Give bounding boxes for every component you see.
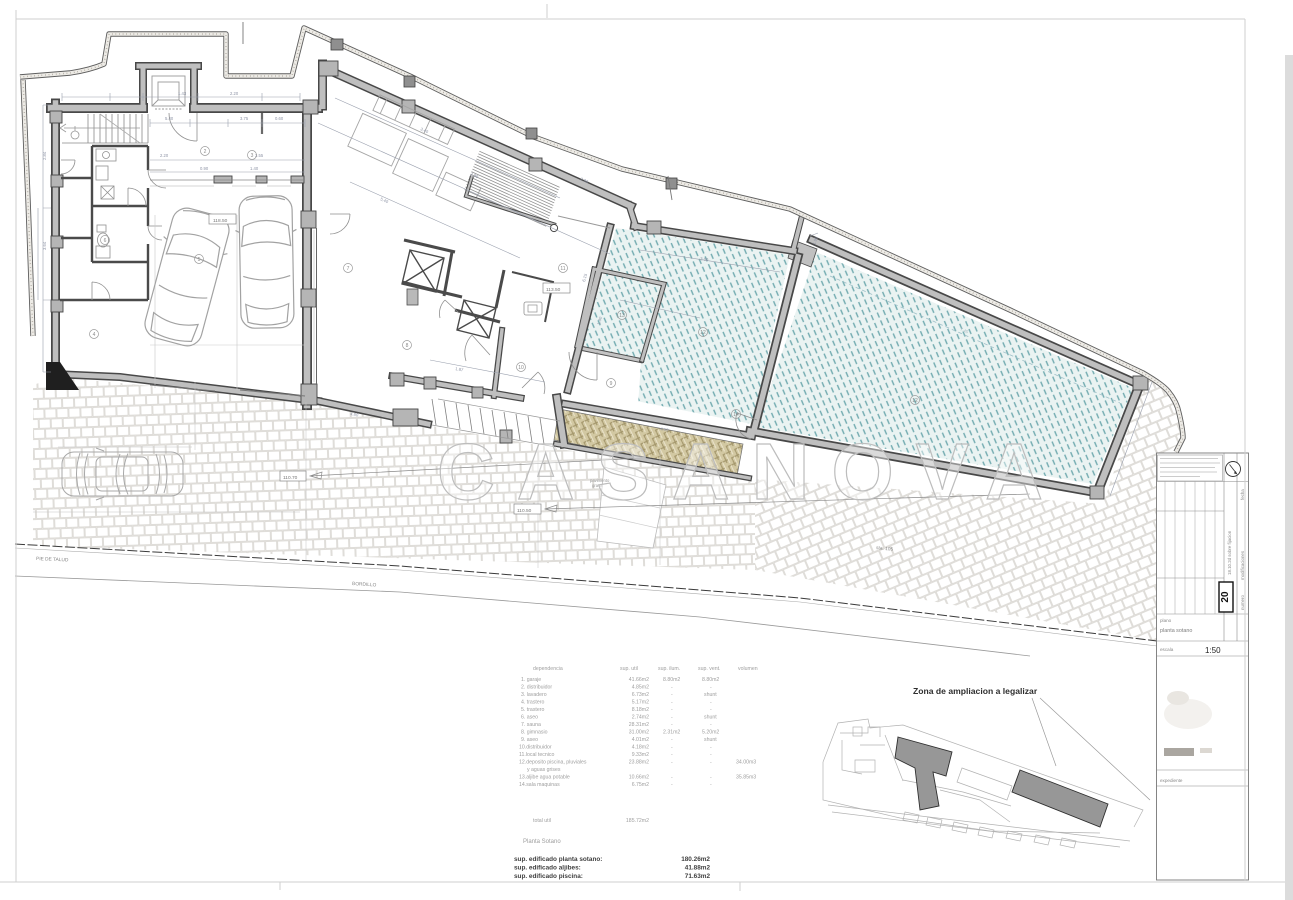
svg-text:y aguas grises: y aguas grises: [527, 767, 561, 773]
svg-text:8.18m2: 8.18m2: [632, 707, 649, 713]
svg-text:6.75m2: 6.75m2: [632, 782, 649, 788]
svg-text:escala: escala: [1160, 647, 1174, 652]
svg-text:2.84: 2.84: [42, 151, 47, 160]
svg-text:11: 11: [560, 266, 565, 272]
svg-text:5: 5: [198, 257, 201, 263]
svg-text:plano: plano: [1160, 618, 1172, 623]
svg-text:-: -: [710, 700, 712, 706]
svg-text:1.40: 1.40: [250, 166, 259, 171]
svg-text:71.63m2: 71.63m2: [685, 873, 711, 880]
svg-text:1:50: 1:50: [1205, 646, 1221, 655]
svg-text:4. trastero: 4. trastero: [521, 700, 544, 706]
svg-text:sup. edificado planta sotan: sup. edificado planta sotano:: [514, 856, 602, 863]
svg-text:CASANOVA: CASANOVA: [437, 427, 1065, 516]
svg-text:12: 12: [700, 330, 706, 336]
svg-text:2.31m2: 2.31m2: [663, 730, 680, 736]
svg-text:28.31m2: 28.31m2: [629, 722, 649, 728]
svg-text:-: -: [671, 745, 673, 751]
svg-text:34.00m3: 34.00m3: [736, 760, 756, 766]
svg-text:-: -: [671, 775, 673, 781]
svg-text:2.20: 2.20: [230, 91, 239, 96]
svg-text:14: 14: [733, 412, 739, 418]
svg-text:4.18m2: 4.18m2: [632, 745, 649, 751]
svg-text:2.20: 2.20: [160, 153, 169, 158]
svg-text:shunt: shunt: [704, 692, 717, 698]
svg-text:10.distribuidor: 10.distribuidor: [519, 745, 552, 751]
svg-text:2. distribuidor: 2. distribuidor: [521, 685, 552, 691]
svg-text:8.80m2: 8.80m2: [702, 677, 719, 683]
svg-text:13: 13: [619, 313, 625, 319]
svg-text:planta sotano: planta sotano: [1160, 628, 1192, 634]
svg-text:-: -: [710, 775, 712, 781]
svg-text:4.85m2: 4.85m2: [632, 685, 649, 691]
svg-text:10.66m2: 10.66m2: [629, 775, 649, 781]
svg-text:35.85m3: 35.85m3: [736, 775, 756, 781]
svg-text:5.17m2: 5.17m2: [632, 700, 649, 706]
svg-text:41.66m2: 41.66m2: [629, 677, 649, 683]
svg-text:41.88m2: 41.88m2: [685, 865, 711, 872]
svg-text:3. lavadero: 3. lavadero: [521, 692, 547, 698]
svg-text:11.local tecnico: 11.local tecnico: [519, 752, 554, 758]
svg-text:-: -: [671, 700, 673, 706]
svg-text:modificaciones: modificaciones: [1240, 550, 1245, 580]
svg-text:fecha: fecha: [1240, 489, 1245, 500]
svg-text:dependencia: dependencia: [533, 666, 563, 672]
svg-text:-: -: [710, 782, 712, 788]
svg-text:8.80m2: 8.80m2: [663, 677, 680, 683]
svg-text:7. sauna: 7. sauna: [521, 722, 541, 728]
svg-text:13.aljibe agua potable: 13.aljibe agua potable: [519, 775, 570, 781]
svg-text:3.64: 3.64: [42, 241, 47, 250]
svg-text:total util: total util: [533, 818, 551, 824]
svg-text:-: -: [671, 715, 673, 721]
svg-text:118.50: 118.50: [213, 218, 228, 224]
svg-text:-: -: [710, 722, 712, 728]
svg-text:185.72m2: 185.72m2: [626, 818, 649, 824]
svg-text:sup. edificado piscina:: sup. edificado piscina:: [514, 873, 583, 880]
svg-text:5.20m2: 5.20m2: [702, 730, 719, 736]
svg-text:-: -: [710, 745, 712, 751]
svg-text:4.01m2: 4.01m2: [632, 737, 649, 743]
svg-text:-: -: [710, 760, 712, 766]
svg-text:9.33m2: 9.33m2: [632, 752, 649, 758]
svg-text:volumen: volumen: [738, 666, 758, 672]
svg-text:14.sala maquinas: 14.sala maquinas: [519, 782, 560, 788]
svg-text:expediente: expediente: [1160, 778, 1183, 783]
svg-text:8: 8: [406, 343, 409, 349]
svg-text:3.75: 3.75: [240, 116, 249, 121]
svg-text:-: -: [671, 692, 673, 698]
svg-text:2.74m2: 2.74m2: [632, 715, 649, 721]
svg-text:-: -: [671, 685, 673, 691]
svg-text:113.50: 113.50: [546, 287, 561, 293]
svg-text:110.70: 110.70: [283, 475, 298, 481]
svg-text:6: 6: [104, 238, 107, 244]
svg-text:-: -: [671, 760, 673, 766]
svg-text:0.60: 0.60: [275, 116, 284, 121]
svg-text:1.43: 1.43: [178, 91, 187, 96]
svg-text:-: -: [710, 685, 712, 691]
svg-text:Planta Sotano: Planta Sotano: [523, 839, 561, 845]
svg-text:-: -: [671, 707, 673, 713]
svg-text:5. trastero: 5. trastero: [521, 707, 544, 713]
svg-text:20: 20: [1220, 591, 1231, 603]
svg-text:-: -: [710, 707, 712, 713]
svg-text:sup. util: sup. util: [620, 666, 638, 672]
svg-text:7: 7: [347, 266, 350, 272]
svg-text:-: -: [671, 782, 673, 788]
svg-text:sup. vent.: sup. vent.: [698, 666, 721, 672]
svg-text:-: -: [710, 752, 712, 758]
svg-text:5.40: 5.40: [165, 116, 174, 121]
svg-text:3: 3: [251, 153, 254, 159]
svg-text:-: -: [671, 722, 673, 728]
svg-text:Zona de ampliacion a legalizar: Zona de ampliacion a legalizar: [913, 686, 1038, 696]
svg-text:10: 10: [518, 365, 524, 371]
svg-text:shunt: shunt: [704, 737, 717, 743]
svg-text:2: 2: [204, 149, 207, 155]
svg-text:8. gimnasio: 8. gimnasio: [521, 730, 548, 736]
svg-text:9: 9: [610, 381, 613, 387]
svg-text:31.00m2: 31.00m2: [629, 730, 649, 736]
svg-text:sup. edificado aljibes:: sup. edificado aljibes:: [514, 865, 581, 872]
svg-text:-: -: [671, 737, 673, 743]
svg-text:shunt: shunt: [704, 715, 717, 721]
svg-text:-: -: [671, 752, 673, 758]
svg-text:6.73m2: 6.73m2: [632, 692, 649, 698]
svg-text:1. garaje: 1. garaje: [521, 677, 541, 683]
svg-text:9. aseo: 9. aseo: [521, 737, 538, 743]
svg-text:23.88m2: 23.88m2: [629, 760, 649, 766]
svg-text:12.deposito piscina, pluviales: 12.deposito piscina, pluviales: [519, 760, 587, 766]
svg-text:180.26m2: 180.26m2: [681, 856, 710, 863]
svg-text:0.90: 0.90: [200, 166, 209, 171]
svg-text:18.10.2d sobre fijacion: 18.10.2d sobre fijacion: [1227, 530, 1232, 575]
svg-text:4: 4: [93, 332, 96, 338]
svg-text:sup. ilum.: sup. ilum.: [658, 666, 680, 672]
svg-text:6. aseo: 6. aseo: [521, 715, 538, 721]
svg-text:12: 12: [912, 398, 918, 404]
svg-text:numero: numero: [1240, 595, 1245, 610]
